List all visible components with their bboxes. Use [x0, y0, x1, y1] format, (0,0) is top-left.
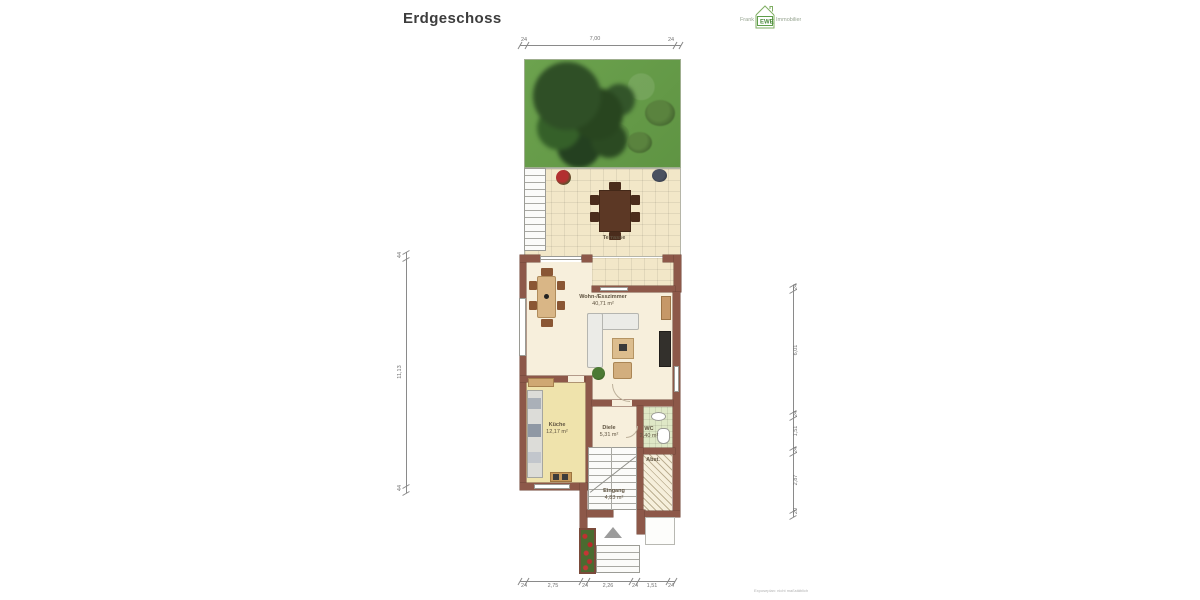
wall: [580, 483, 587, 533]
terrace-chair: [590, 212, 599, 222]
wall: [520, 255, 540, 262]
dim-line-top: [520, 45, 681, 46]
armchair: [613, 362, 632, 379]
room-area: 4,83 m²: [594, 495, 634, 502]
bush-icon: [645, 100, 675, 126]
terrace-notch-floor: [592, 258, 675, 286]
terrace-chair: [609, 182, 621, 190]
dark-planter-icon: [652, 169, 667, 182]
kitchen-appliance: [528, 452, 541, 463]
wall: [520, 255, 526, 490]
dim-label: 44: [397, 477, 403, 499]
houseplant-icon: [592, 367, 605, 380]
room-name: Terrasse: [592, 235, 636, 242]
page-title: Erdgeschoss: [403, 10, 502, 27]
room-label-diele: Diele 5,31 m²: [592, 425, 626, 439]
terrace-table: [599, 190, 631, 232]
bush-icon: [627, 132, 652, 153]
entrance-steps: [596, 545, 640, 573]
terrace-door-window: [540, 256, 582, 260]
room-label-eingang: Eingang 4,83 m²: [594, 488, 634, 502]
wc-sink: [651, 412, 666, 421]
room-name: Eingang: [594, 488, 634, 495]
wall: [592, 400, 673, 406]
sofa-vertical: [587, 313, 603, 368]
room-name: Abst.: [638, 457, 668, 464]
kitchen-appliance: [528, 398, 541, 409]
table-vase-icon: [544, 294, 549, 299]
window: [519, 298, 526, 356]
terrace-chair: [631, 195, 640, 205]
dim-label: 24: [626, 583, 644, 589]
room-label-wohnen: Wohn-/Esszimmer 40,71 m²: [573, 294, 633, 308]
room-label-wc: WC 2,40 m²: [634, 426, 664, 440]
entrance-porch: [645, 517, 675, 545]
room-name: Diele: [592, 425, 626, 432]
dim-line-left: [406, 252, 407, 493]
room-label-terrasse: Terrasse: [592, 235, 636, 242]
dim-label: 6,01: [793, 339, 799, 361]
dim-label: 20: [793, 500, 799, 522]
wall: [637, 510, 645, 534]
window: [674, 366, 679, 392]
tv-lowboard: [659, 331, 671, 367]
wall: [582, 255, 592, 262]
room-area: 40,71 m²: [573, 301, 633, 308]
tree-icon: [533, 62, 601, 130]
flower-bed: [579, 528, 596, 574]
room-area: 2,40 m²: [634, 433, 664, 440]
kitchen-shelf: [528, 378, 554, 387]
potted-plant-icon: [556, 170, 571, 185]
dining-chair: [529, 301, 537, 310]
stove-icon: [562, 474, 568, 480]
logo-text-right: Immobilien: [776, 17, 801, 23]
logo-text-left: Frank: [740, 17, 754, 23]
room-label-kueche: Küche 12,17 m²: [538, 422, 576, 436]
window: [534, 484, 570, 489]
stove-icon: [553, 474, 559, 480]
dim-tick: [402, 491, 409, 496]
table-item-icon: [619, 344, 627, 351]
dim-label: 24: [515, 37, 533, 43]
terrace-chair: [631, 212, 640, 222]
dim-label: 11,13: [397, 361, 403, 383]
floor-plan-page: Erdgeschoss Frank EWE Immobilien Terrass…: [0, 0, 1200, 600]
room-name: Wohn-/Esszimmer: [573, 294, 633, 301]
dim-label: 2,75: [544, 583, 562, 589]
garden-stairs: [524, 168, 546, 251]
dim-label: 44: [397, 244, 403, 266]
dim-label: 24: [793, 439, 799, 461]
dim-label: 1,51: [643, 583, 661, 589]
room-label-abst: Abst.: [638, 457, 668, 464]
room-name: WC: [634, 426, 664, 433]
company-logo: Frank EWE Immobilien: [727, 2, 801, 32]
dim-label: 2,87: [793, 469, 799, 491]
sideboard: [661, 296, 671, 320]
room-area: 12,17 m²: [538, 429, 576, 436]
dim-label: 24: [793, 276, 799, 298]
dim-label: 24: [662, 37, 680, 43]
room-area: 5,31 m²: [592, 432, 626, 439]
terrace-chair: [590, 195, 599, 205]
wall: [587, 510, 613, 517]
dining-chair: [557, 301, 565, 310]
garden-area: [524, 59, 681, 168]
dim-label: 7,00: [586, 36, 604, 42]
dim-label: 2,26: [599, 583, 617, 589]
room-name: Küche: [538, 422, 576, 429]
wall: [674, 255, 681, 292]
dining-chair: [557, 281, 565, 290]
dim-line-bottom: [520, 581, 675, 582]
dim-label: 24: [662, 583, 680, 589]
dining-chair: [529, 281, 537, 290]
north-arrow-icon: [604, 527, 622, 538]
door-opening: [568, 376, 584, 382]
dim-label: 24: [515, 583, 533, 589]
window: [600, 287, 628, 291]
dim-label: 24: [576, 583, 594, 589]
wall: [673, 292, 680, 517]
dining-chair: [541, 319, 553, 327]
logo-text-center: EWE: [760, 20, 774, 26]
dining-chair: [541, 268, 553, 276]
disclaimer-text: Exposeplan: nicht maßstäblich: [754, 588, 808, 593]
